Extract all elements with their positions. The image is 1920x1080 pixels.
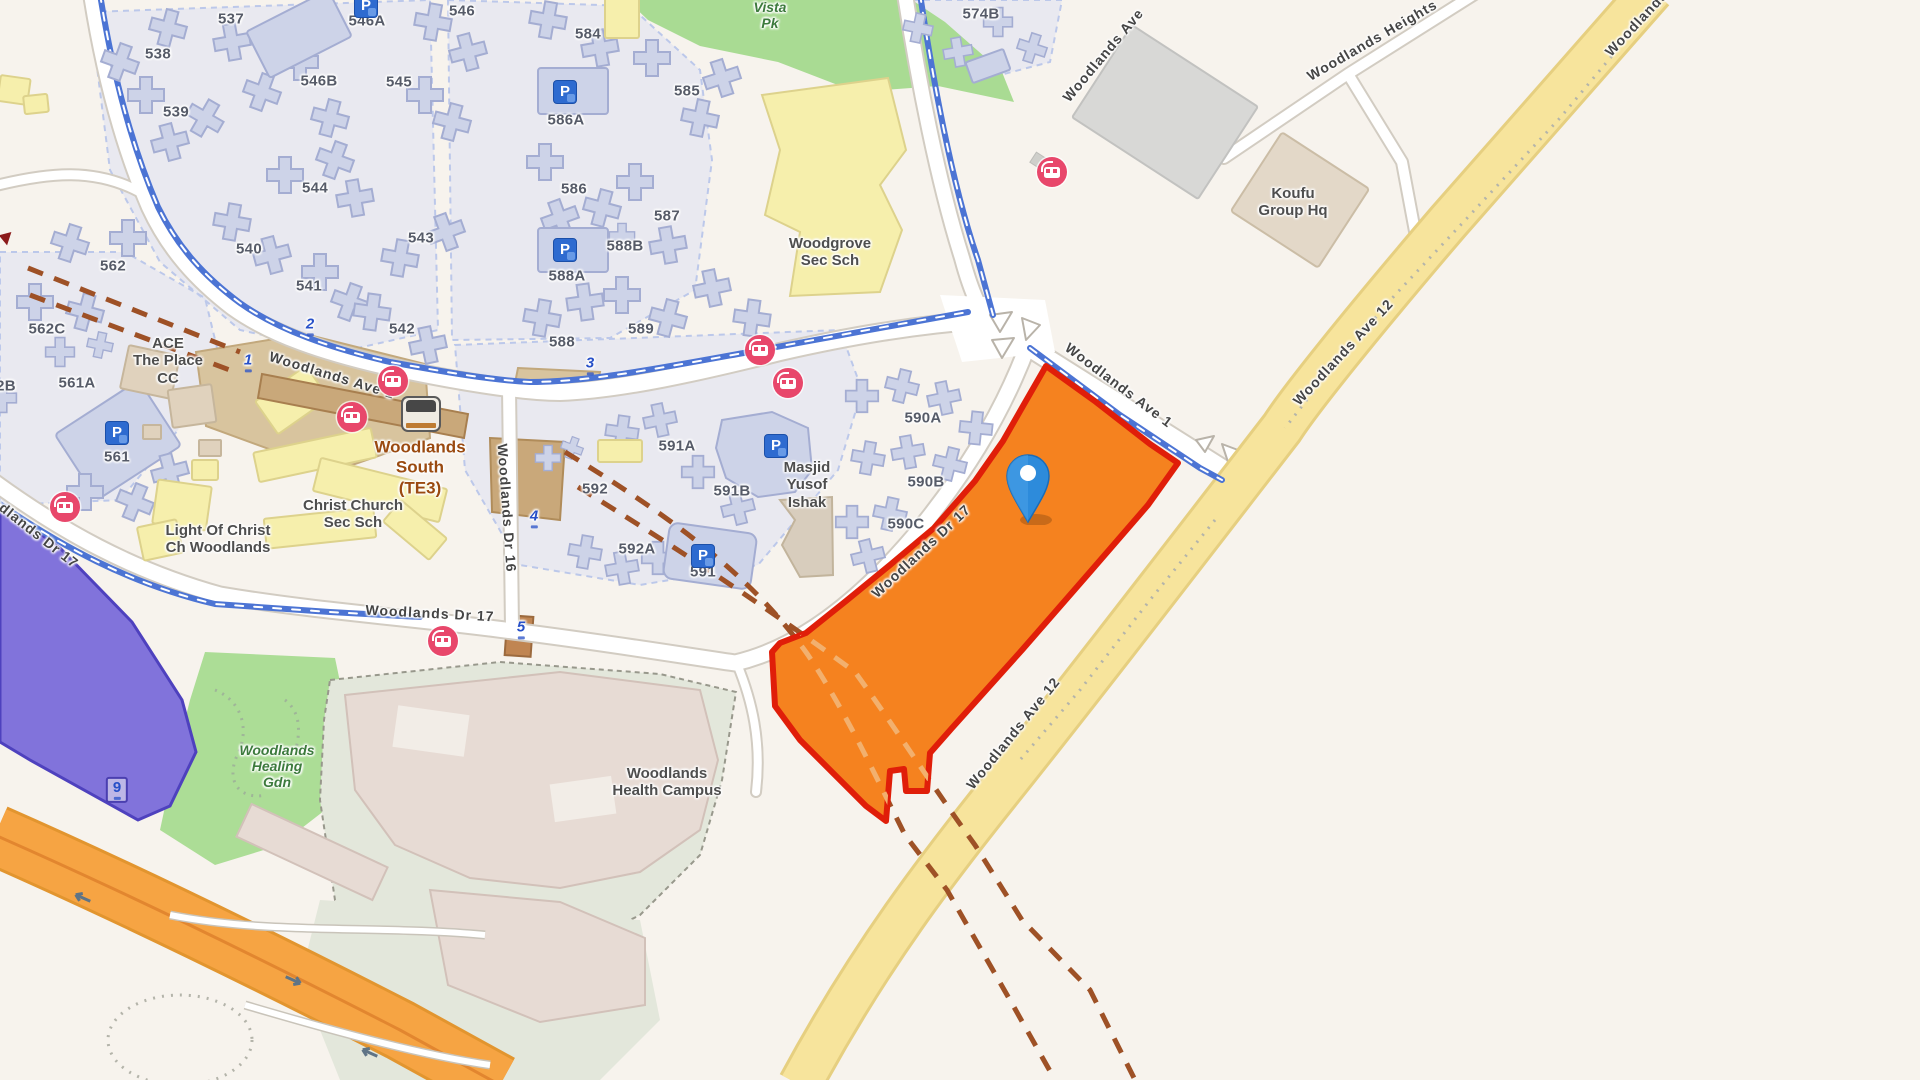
parking-icon[interactable]: P <box>553 238 577 262</box>
bus-stop-icon[interactable] <box>50 492 80 522</box>
bus-glyph <box>385 376 401 387</box>
parking-icon[interactable]: P <box>553 80 577 104</box>
map-canvas[interactable]: 537538539540541542543544545546546A546B58… <box>0 0 1920 1080</box>
bus-stop-icon[interactable] <box>773 368 803 398</box>
bus-stop-icon[interactable] <box>378 366 408 396</box>
mrt-train-icon[interactable] <box>401 396 441 432</box>
map-base-layer <box>0 0 1920 1080</box>
parking-icon[interactable]: P <box>764 434 788 458</box>
koufu-building <box>1231 132 1369 267</box>
bus-glyph <box>780 378 796 389</box>
warehouse-building <box>1072 25 1258 199</box>
parking-icon[interactable]: P <box>691 544 715 568</box>
parking-icon[interactable]: P <box>105 421 129 445</box>
pin-dot <box>1020 465 1036 481</box>
mosque-annex <box>780 497 833 577</box>
bus-glyph <box>57 502 73 513</box>
bus-stop-icon[interactable] <box>745 335 775 365</box>
bus-glyph <box>344 412 360 423</box>
location-pin[interactable] <box>998 440 1058 525</box>
bus-glyph <box>752 345 768 356</box>
parking-icon[interactable]: P <box>354 0 378 18</box>
bus-stop-icon[interactable] <box>337 402 367 432</box>
pin-highlight <box>1007 455 1028 522</box>
bus-stop-icon[interactable] <box>428 626 458 656</box>
bus-glyph <box>1044 167 1060 178</box>
bus-stop-icon[interactable] <box>1037 157 1067 187</box>
bus-glyph <box>435 636 451 647</box>
